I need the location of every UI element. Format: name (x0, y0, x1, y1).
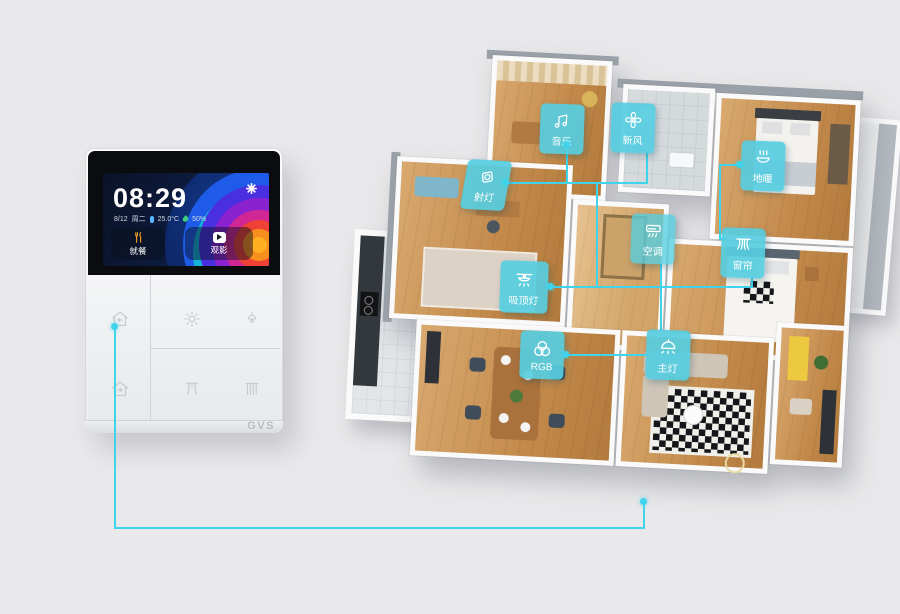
label-text: 主灯 (657, 359, 678, 375)
label-rgb[interactable]: RGB (519, 330, 565, 380)
connector-line (596, 182, 598, 288)
scene-label: 就餐 (129, 245, 146, 257)
music-note-icon (552, 110, 573, 131)
label-ceiling-light[interactable]: 吸顶灯 (499, 260, 549, 314)
room-living (615, 330, 774, 474)
curtain-decor (496, 60, 607, 86)
stage: 射灯 音乐 新风 地暖 空调 窗帘 吸顶灯 (0, 0, 900, 614)
label-music[interactable]: 音乐 (539, 103, 585, 155)
weekday-text: 周二 (132, 214, 146, 224)
label-text: RGB (531, 361, 553, 373)
humidity-icon (182, 215, 190, 223)
label-fresh-air[interactable]: 新风 (610, 102, 656, 154)
connector-dot-rgb (562, 351, 569, 358)
scene-button-movie[interactable]: 观影 (185, 227, 253, 260)
pillow (762, 121, 783, 134)
desk-chair (486, 220, 500, 234)
fan-icon (623, 109, 644, 130)
label-main-light[interactable]: 主灯 (645, 329, 691, 381)
chair (469, 357, 486, 372)
gear-icon[interactable] (244, 181, 259, 196)
connector-dot-spotlight (502, 179, 509, 186)
plate (499, 413, 510, 424)
spotlight-icon (476, 166, 499, 187)
label-floor-heating[interactable]: 地暖 (740, 140, 786, 192)
main-connector-dot-house (640, 498, 647, 505)
room-bedroom2 (709, 93, 860, 246)
key-curtain[interactable] (174, 371, 210, 407)
main-connector-horizontal (114, 527, 645, 529)
humidity-text: 50% (192, 216, 206, 223)
plate (501, 355, 512, 366)
room-dining (410, 319, 621, 465)
label-text: 窗帘 (732, 256, 753, 272)
thermometer-icon (150, 216, 154, 223)
sofa-chaise (641, 374, 669, 417)
curtain-icon (733, 234, 754, 255)
swirl-art (251, 237, 267, 253)
plant (510, 389, 524, 403)
main-connector-vertical-right (643, 501, 645, 528)
label-curtain[interactable]: 窗帘 (720, 227, 766, 279)
screen-bezel: 08:29 8/12 周二 25.0°C 50% 就餐 (88, 151, 280, 275)
nightstand (804, 267, 819, 282)
clock-time: 08:29 (113, 183, 187, 214)
connector-dot-ceiling (547, 283, 554, 290)
hanging-lamp-decor (581, 91, 598, 108)
pillow (790, 123, 811, 136)
key-divider-horizontal (150, 348, 280, 349)
home-away-icon (109, 378, 131, 400)
dark-shelf (819, 390, 836, 455)
sideboard (425, 331, 442, 384)
plate (520, 422, 531, 433)
key-blinds[interactable] (234, 371, 270, 407)
burner (364, 306, 373, 315)
ceiling-light-icon (513, 267, 536, 290)
floor-lamp-ring (724, 453, 745, 474)
connector-line (550, 286, 753, 288)
scene-button-dining[interactable]: 就餐 (111, 227, 165, 260)
yellow-cabinet (787, 336, 809, 381)
check-blanket (743, 280, 774, 304)
connector-dot-music (563, 141, 570, 148)
main-connector-vertical-left (114, 326, 116, 528)
key-home-away[interactable] (102, 371, 138, 407)
label-text: 地暖 (752, 169, 773, 185)
bath-fixture2 (668, 151, 695, 168)
plant (814, 355, 829, 370)
air-conditioner-icon (643, 220, 664, 241)
key-home-return[interactable] (102, 301, 138, 337)
blinds-icon (242, 379, 262, 399)
chair (548, 413, 565, 428)
label-text: 新风 (622, 131, 643, 147)
room-balcony-right (770, 322, 849, 468)
dome-light-icon (657, 335, 680, 358)
main-connector-dot-panel (111, 323, 118, 330)
teal-cabinet (414, 176, 459, 198)
connector-line (505, 182, 648, 184)
movie-play-icon (213, 232, 226, 243)
label-text: 射灯 (473, 188, 496, 204)
label-ac[interactable]: 空调 (630, 213, 676, 265)
pendant-light-icon (242, 309, 262, 329)
scene-label: 观影 (210, 244, 227, 256)
connector-line (660, 262, 662, 332)
heating-icon (753, 147, 774, 168)
label-text: 吸顶灯 (508, 291, 539, 307)
hard-key-panel (88, 275, 280, 422)
key-pendant-light[interactable] (234, 301, 270, 337)
burner (364, 296, 373, 305)
lounge-chair (789, 398, 812, 415)
curtain-icon (182, 379, 202, 399)
touchscreen[interactable]: 08:29 8/12 周二 25.0°C 50% 就餐 (103, 173, 269, 266)
connector-line (565, 354, 648, 356)
connector-dot-heating (736, 161, 743, 168)
connector-line (646, 152, 648, 183)
wing-side-face (863, 124, 897, 311)
status-row: 8/12 周二 25.0°C 50% (114, 214, 206, 224)
label-text: 空调 (642, 242, 663, 258)
wardrobe (827, 124, 850, 185)
temperature-text: 25.0°C (158, 216, 179, 223)
pillow (765, 261, 790, 275)
date-text: 8/12 (114, 216, 128, 223)
key-brightness[interactable] (174, 301, 210, 337)
chair (465, 405, 482, 420)
rgb-circles-icon (531, 337, 554, 360)
brand-logo: GVS (247, 420, 275, 432)
dining-utensils-icon (132, 231, 145, 244)
stove (360, 291, 379, 316)
brightness-icon (182, 309, 202, 329)
connector-line (719, 164, 721, 240)
